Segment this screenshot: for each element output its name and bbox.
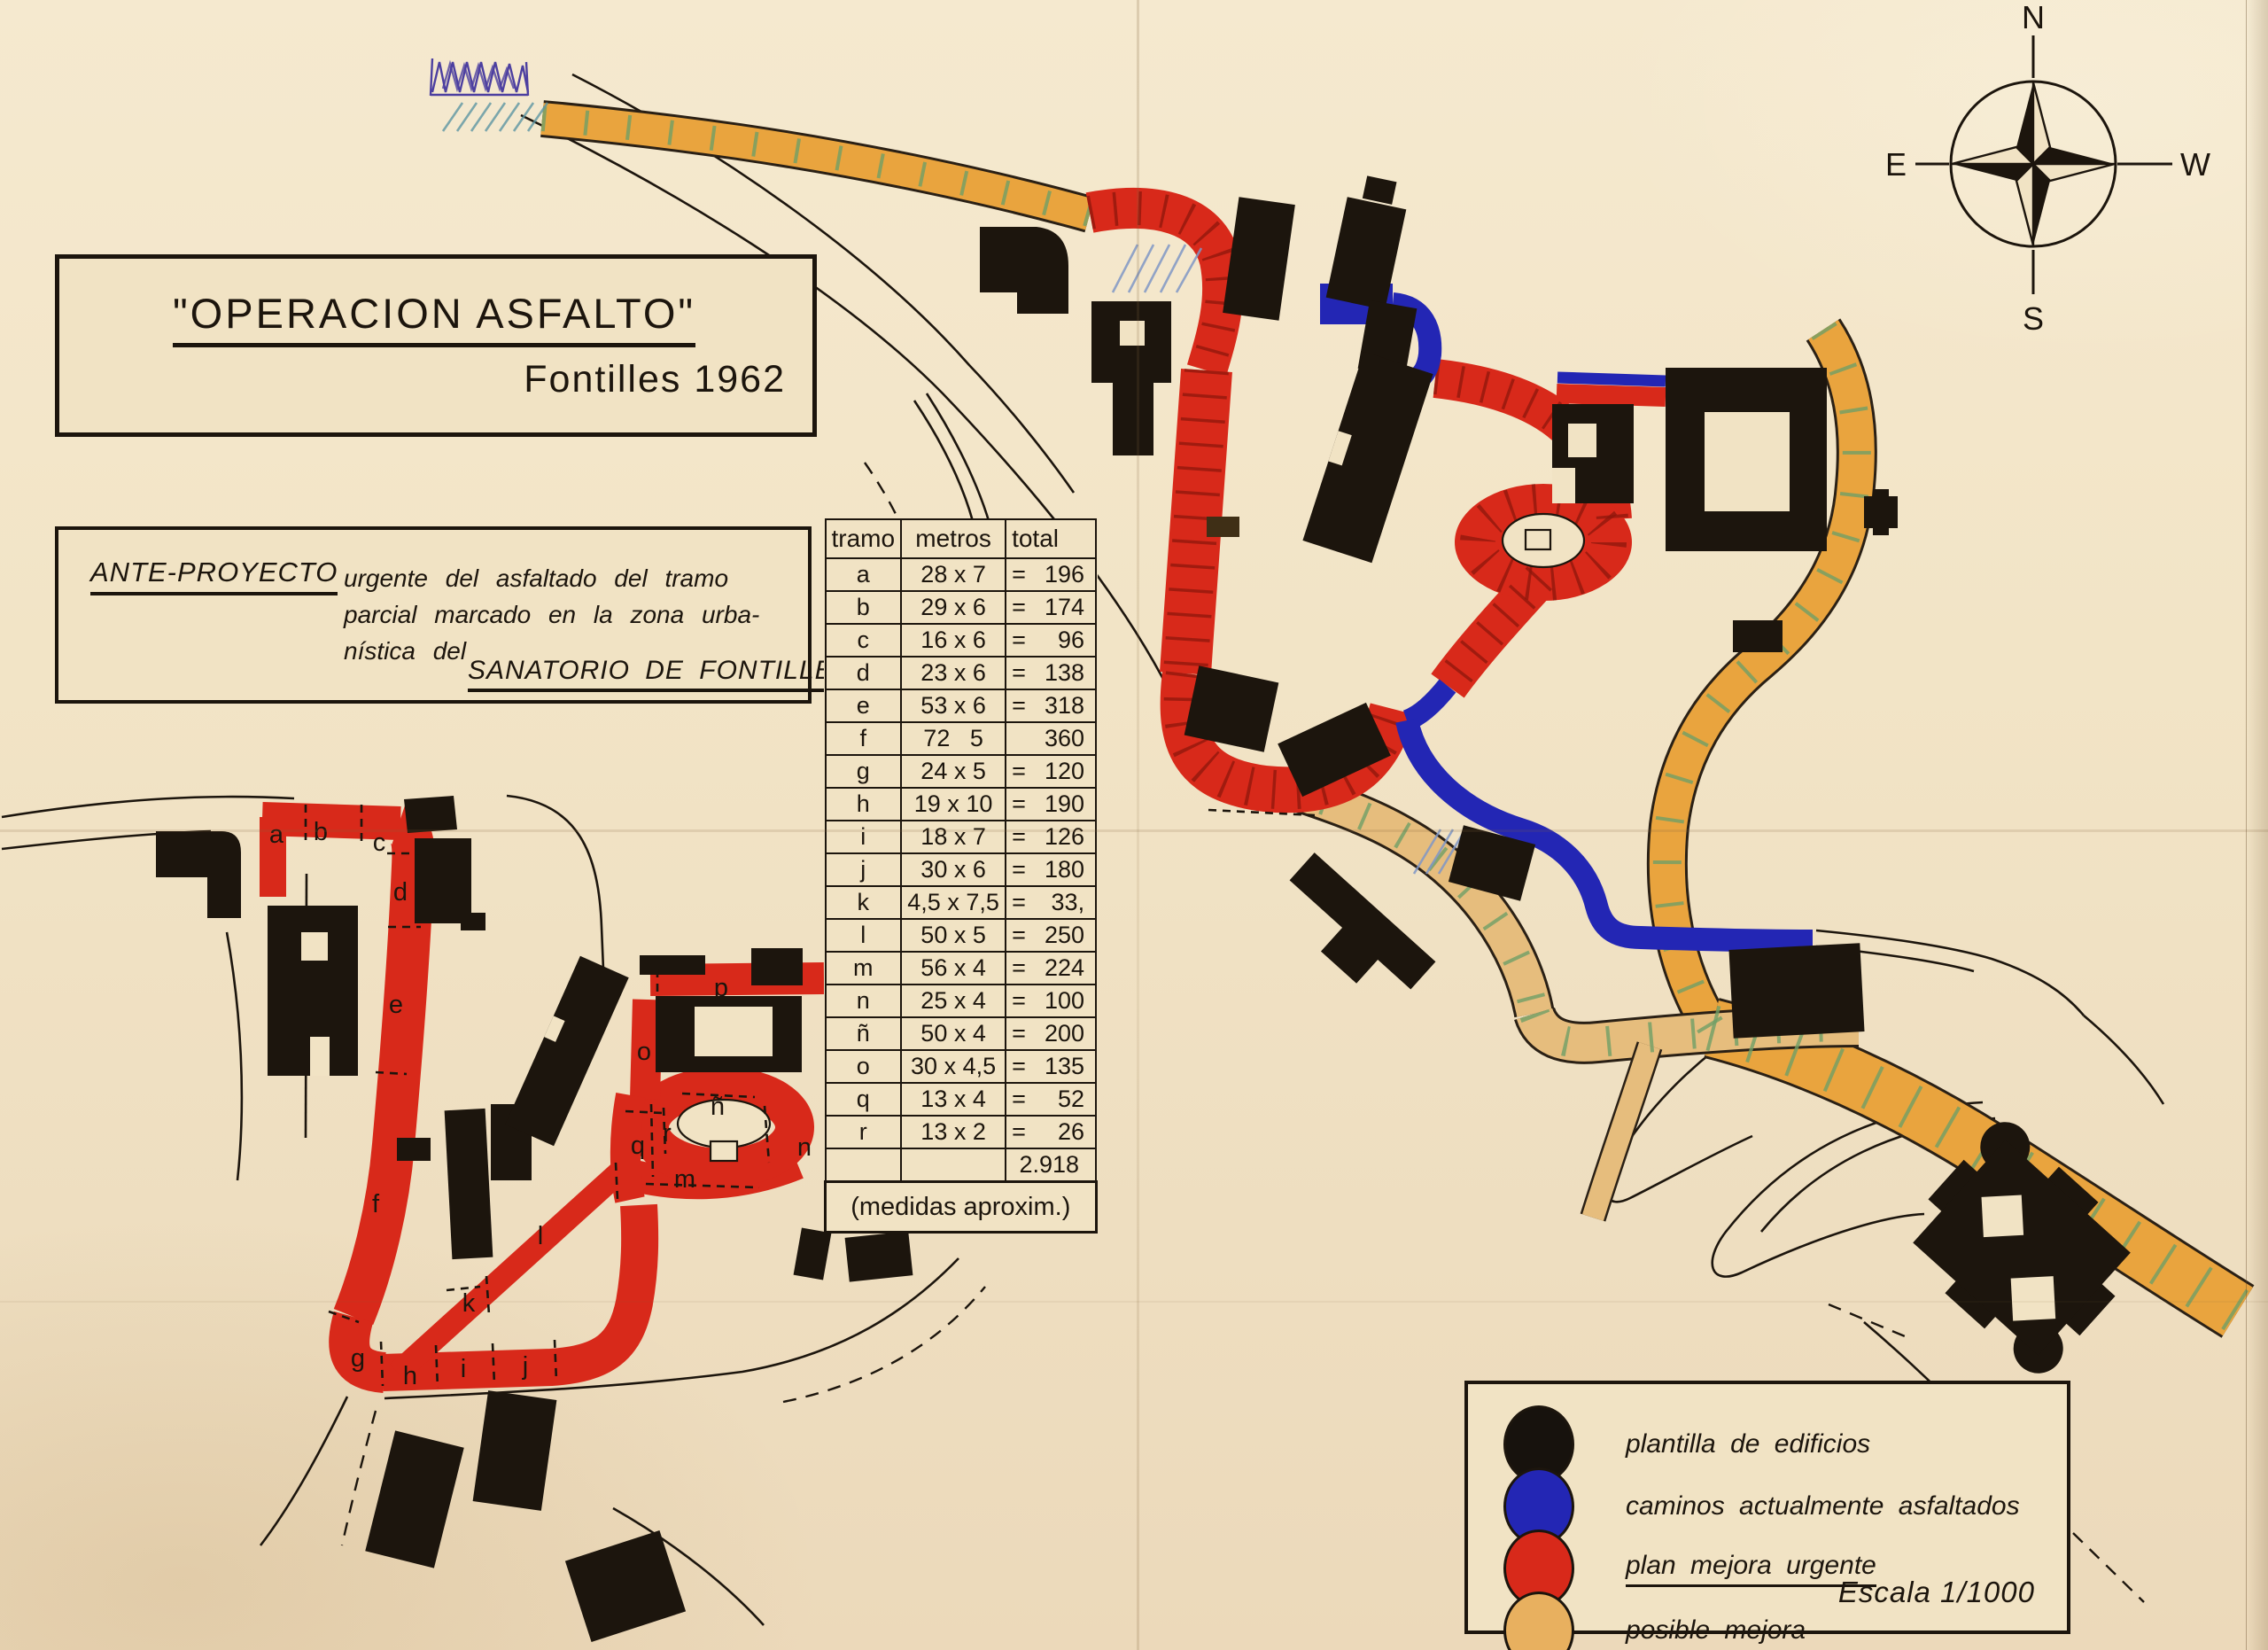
segment-label: h [403,1362,417,1390]
tramo-cell: h [826,788,902,821]
metros-cell: 25 x 4 [901,985,1006,1017]
table-row: e53 x 6=318 [826,689,1097,722]
metros-cell: 72 5 [901,722,1006,755]
map-sheet: a b c d e f g h i j k l m n ñ o p q r [0,0,2268,1650]
metros-cell: 53 x 6 [901,689,1006,722]
segment-label: r [663,1119,672,1148]
header-metros: metros [901,519,1006,558]
compass-west-label: W [2180,146,2210,183]
tramo-cell [826,1148,902,1182]
legend-box: plantilla de edificios caminos actualmen… [1464,1381,2070,1634]
tramo-cell: q [826,1083,902,1116]
segment-label: k [462,1289,476,1318]
table-row: g24 x 5=120 [826,755,1097,788]
tramo-cell: r [826,1116,902,1148]
total-cell: =126 [1006,821,1096,853]
header-total: total [1006,519,1096,558]
metros-cell: 13 x 4 [901,1083,1006,1116]
tramo-cell: m [826,952,902,985]
metros-cell: 16 x 6 [901,624,1006,657]
segment-label: o [637,1038,651,1066]
legend-label: posible mejora [1626,1615,1806,1646]
castle-building [1884,1112,2158,1384]
total-cell: =224 [1006,952,1096,985]
grand-total-cell: 2.918 [1006,1148,1096,1182]
segment-label: d [393,878,408,907]
metros-cell: 50 x 4 [901,1017,1006,1050]
tramo-cell: d [826,657,902,689]
total-cell: =135 [1006,1050,1096,1083]
table-row: l50 x 5=250 [826,919,1097,952]
metros-cell: 4,5 x 7,5 [901,886,1006,919]
segment-label: q [631,1132,645,1160]
table-row: k4,5 x 7,5=33, [826,886,1097,919]
project-body-line: parcial marcado en la zona urba- [344,596,759,633]
segment-label: f [372,1190,380,1218]
measurements-table-head: tramo metros total [826,519,1097,558]
tramo-cell: k [826,886,902,919]
project-body-line: urgente del asfaltado del tramo [344,560,759,596]
metros-cell: 18 x 7 [901,821,1006,853]
total-cell: =138 [1006,657,1096,689]
table-row: b29 x 6=174 [826,591,1097,624]
title-box: "OPERACION ASFALTO" Fontilles 1962 [55,254,817,437]
project-note-box: ANTE-PROYECTO urgente del asfaltado del … [55,526,812,704]
total-cell: =174 [1006,591,1096,624]
table-row: n25 x 4=100 [826,985,1097,1017]
table-note-cell: (medidas aproxim.) [826,1182,1097,1233]
segment-label: l [538,1222,543,1250]
tramo-cell: o [826,1050,902,1083]
table-total-row: 2.918 [826,1148,1097,1182]
table-row: a28 x 7=196 [826,558,1097,591]
project-footer: SANATORIO DE FONTILLES [468,656,852,692]
total-cell: =318 [1006,689,1096,722]
tramo-cell: c [826,624,902,657]
header-tramo: tramo [826,519,902,558]
table-row: c16 x 6=96 [826,624,1097,657]
paper-edge [2246,0,2268,1650]
total-cell: =190 [1006,788,1096,821]
tramo-cell: l [826,919,902,952]
legend-item-possible: posible mejora [1503,1592,1806,1650]
segment-label: m [674,1165,695,1194]
table-note-row: (medidas aproxim.) [826,1182,1097,1233]
metros-cell: 56 x 4 [901,952,1006,985]
legend-swatch-orange [1503,1592,1574,1650]
table-row: j30 x 6=180 [826,853,1097,886]
tramo-cell: g [826,755,902,788]
total-cell: =52 [1006,1083,1096,1116]
segment-label: j [522,1352,528,1381]
table-row: f72 5360 [826,722,1097,755]
scale-label: Escala 1/1000 [1838,1576,2035,1609]
compass-north-label: N [2022,0,2045,35]
tramo-cell: e [826,689,902,722]
tramo-cell: b [826,591,902,624]
total-cell: 360 [1006,722,1096,755]
segment-label: p [714,974,728,1002]
total-cell: =200 [1006,1017,1096,1050]
total-cell: =33, [1006,886,1096,919]
segment-label: i [461,1355,466,1383]
tramo-cell: n [826,985,902,1017]
metros-cell: 23 x 6 [901,657,1006,689]
segment-label: n [797,1133,812,1162]
map-subtitle: Fontilles 1962 [524,358,786,401]
compass-rose-icon: N S E W [1885,0,2210,337]
total-cell: =100 [1006,985,1096,1017]
tramo-cell: a [826,558,902,591]
table-row: d23 x 6=138 [826,657,1097,689]
segment-label: g [351,1344,365,1373]
map-title: "OPERACION ASFALTO" [173,289,695,347]
project-heading: ANTE-PROYECTO [90,556,338,595]
total-cell: =196 [1006,558,1096,591]
tramo-cell: ñ [826,1017,902,1050]
table-row: q13 x 4=52 [826,1083,1097,1116]
table-header-row: tramo metros total [826,519,1097,558]
compass-east-label: E [1885,146,1907,183]
table-row: i18 x 7=126 [826,821,1097,853]
tramo-cell: i [826,821,902,853]
metros-cell: 24 x 5 [901,755,1006,788]
total-cell: =96 [1006,624,1096,657]
table-row: o30 x 4,5=135 [826,1050,1097,1083]
metros-cell: 29 x 6 [901,591,1006,624]
legend-label: caminos actualmente asfaltados [1626,1491,2020,1522]
metros-cell: 19 x 10 [901,788,1006,821]
table-row: h19 x 10=190 [826,788,1097,821]
segment-label: b [314,818,328,846]
total-cell: =120 [1006,755,1096,788]
tramo-cell: f [826,722,902,755]
segment-label: ñ [711,1093,725,1121]
legend-label: plantilla de edificios [1626,1429,1870,1459]
table-row: r13 x 2=26 [826,1116,1097,1148]
metros-cell [901,1148,1006,1182]
tramo-cell: j [826,853,902,886]
metros-cell: 30 x 4,5 [901,1050,1006,1083]
total-cell: =250 [1006,919,1096,952]
compass-south-label: S [2023,300,2044,337]
table-row: m56 x 4=224 [826,952,1097,985]
metros-cell: 13 x 2 [901,1116,1006,1148]
measurements-table: tramo metros total a28 x 7=196b29 x 6=17… [824,518,1098,1234]
project-body: urgente del asfaltado del tramo parcial … [344,560,759,669]
segment-label: e [389,991,403,1019]
table-row: ñ50 x 4=200 [826,1017,1097,1050]
metros-cell: 28 x 7 [901,558,1006,591]
segment-label: c [373,829,386,857]
total-cell: =26 [1006,1116,1096,1148]
metros-cell: 50 x 5 [901,919,1006,952]
segment-label: a [269,821,284,849]
measurements-table-body: a28 x 7=196b29 x 6=174c16 x 6=96d23 x 6=… [826,558,1097,1233]
total-cell: =180 [1006,853,1096,886]
metros-cell: 30 x 6 [901,853,1006,886]
